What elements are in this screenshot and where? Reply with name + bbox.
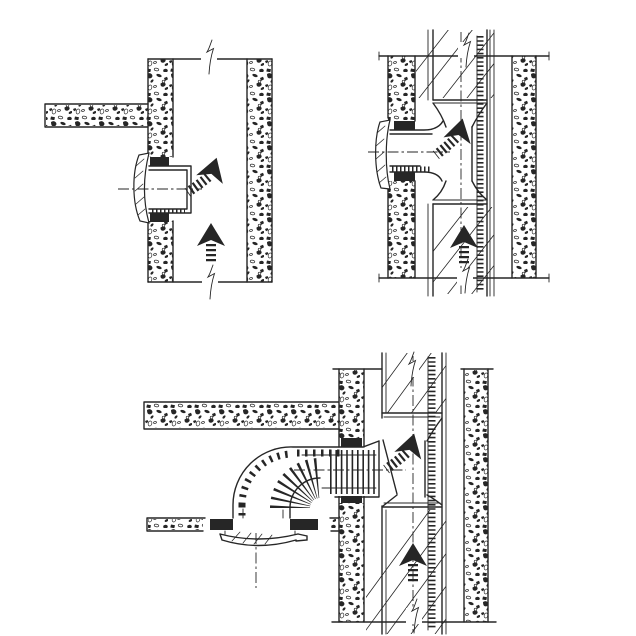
ceiling-valve xyxy=(220,531,307,546)
cover-plate-flange xyxy=(376,120,390,189)
sketch-svg xyxy=(0,0,636,636)
break-mark-icon xyxy=(201,40,217,74)
sketch-canvas xyxy=(0,0,636,636)
flex-liner xyxy=(428,357,432,630)
break-mark-icon xyxy=(403,352,419,386)
break-mark-icon xyxy=(202,265,218,299)
detail-top-left xyxy=(45,59,272,282)
cover-plate-flange xyxy=(134,153,149,223)
airflow-up-arrow-icon xyxy=(197,223,225,264)
duct-stub xyxy=(149,166,191,213)
detail-bottom xyxy=(144,315,550,636)
floor-slab xyxy=(144,402,339,429)
duct-stub xyxy=(390,121,443,181)
branch-wall xyxy=(45,104,148,127)
airflow-curved-arrow-icon xyxy=(386,429,427,478)
airflow-up-arrow-icon xyxy=(450,225,478,266)
airflow-curved-arrow-icon xyxy=(187,152,229,202)
break-mark-icon xyxy=(406,599,422,633)
